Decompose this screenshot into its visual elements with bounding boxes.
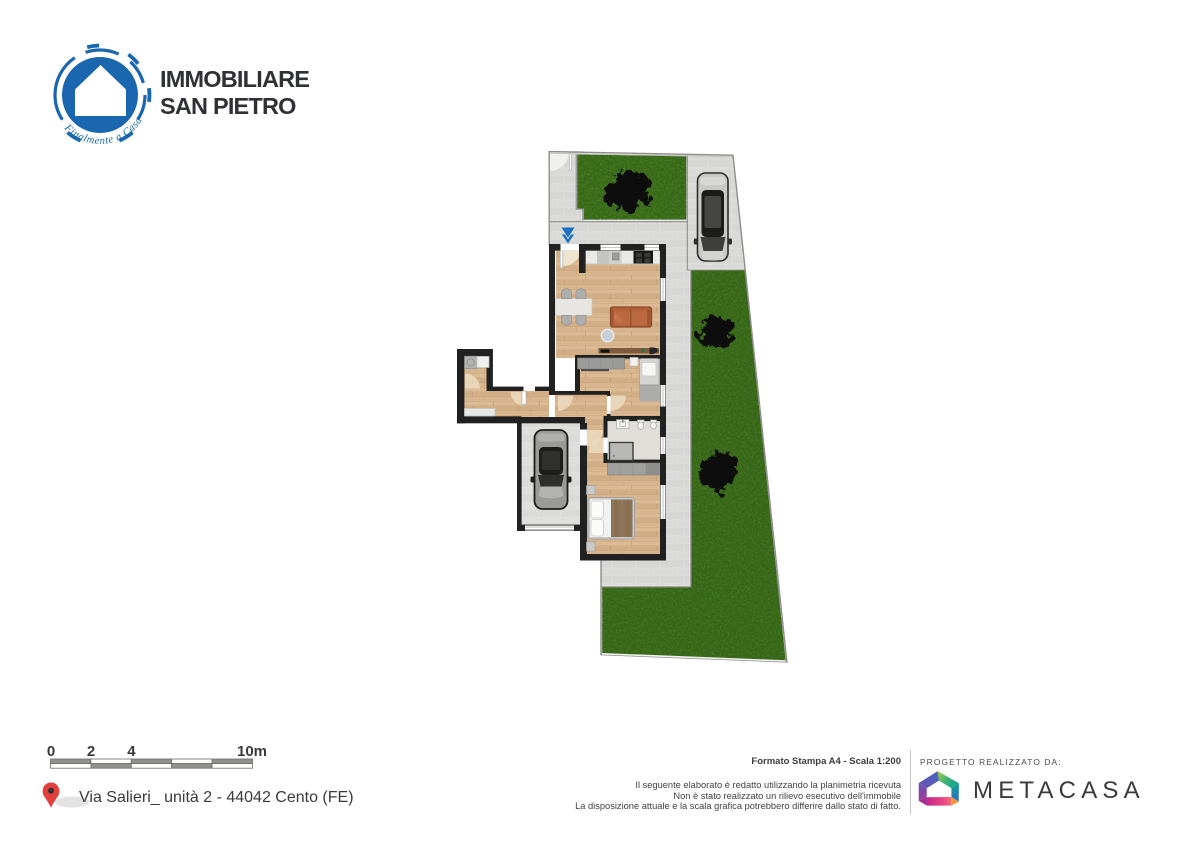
svg-text:4: 4 bbox=[127, 743, 136, 760]
svg-text:10m: 10m bbox=[237, 743, 267, 760]
